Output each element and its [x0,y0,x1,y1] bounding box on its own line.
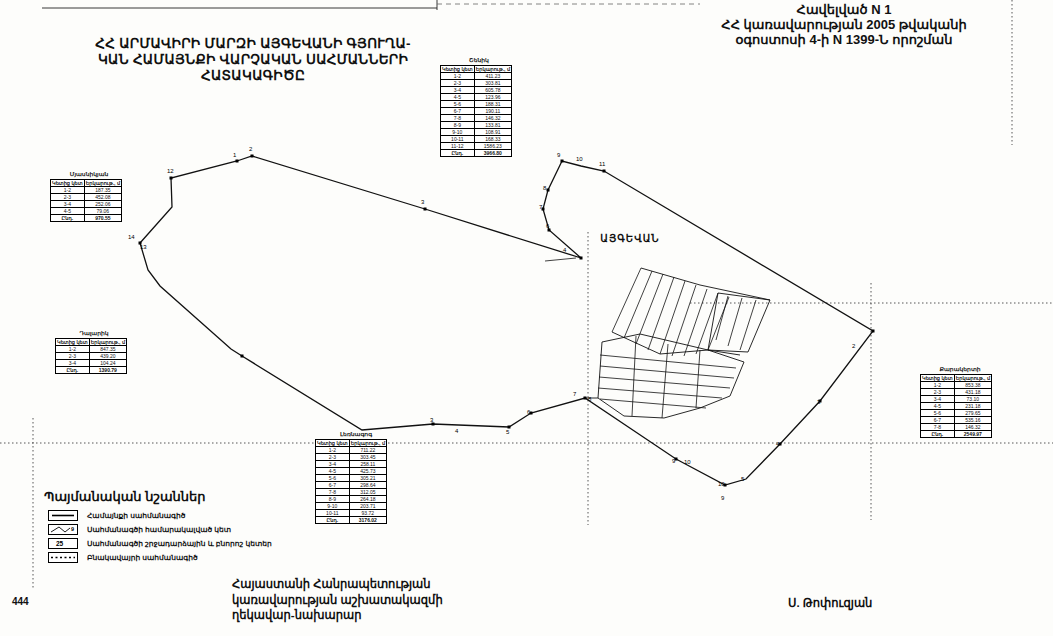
table-cell: 168.33 [474,136,511,143]
legend-label: Բնակավայրի սահմանագիծ [87,553,198,562]
table-title: Լեռնագոգ [315,430,397,437]
table-row: 4-5231.18 [921,403,992,410]
table-cell: 305.21 [349,475,386,482]
signatory-name: Ս. Թոփուզյան [788,596,872,610]
boundary-point-number: 9 [557,152,561,158]
parcel-top-edge [641,268,770,300]
table-row: 7-8146.32 [921,424,992,431]
table-header: Երկարութ., մ [349,440,386,447]
boundary-point-number: 6 [546,223,550,229]
segment-table-west-mid: Դալարիկ Կետից կետԵրկարութ., մ1-2847.352-… [55,329,133,374]
table-cell: 439.20 [89,353,126,360]
annex-line-2: ՀՀ կառավարության 2005 թվականի [640,17,1048,32]
parcel-strip [636,274,663,344]
segment-table-west-top: Մյասնիկյան Կետից կետԵրկարութ., մ1-2187.3… [50,170,128,222]
table-cell: 104.24 [89,360,126,367]
table-cell: 6-7 [316,482,350,489]
table-row: 3-473.10 [921,396,992,403]
table-cell: 5-6 [921,410,955,417]
table-cell: 303.45 [349,454,386,461]
boundary-point-number: 14 [128,234,135,240]
table-header: Երկարութ., մ [474,66,511,73]
table-cell: 279.65 [954,410,991,417]
table-cell: 3-4 [921,396,955,403]
segment-table-north: Շենիկ Կետից կետԵրկարութ., մ1-2411.232-33… [440,56,518,157]
community-boundary [140,156,873,485]
table-cell: 7-8 [921,424,955,431]
table-cell: 8-9 [441,122,475,129]
table-total-cell: 2549.97 [954,431,991,438]
table-cell: 6-7 [921,417,955,424]
boundary-point-number: 8 [543,185,547,191]
segment-length-table: Կետից կետԵրկարութ., մ1-2853.382-3431.183… [920,374,992,438]
table-cell: 4-5 [316,468,350,475]
table-row: 5-6188.31 [441,101,512,108]
title-line-1: ՀՀ ԱՐՄԱՎԻՐԻ ՄԱՐԶԻ ԱՅԳԵՎԱՆԻ ԳՅՈՒՂԱ- [76,36,430,52]
parcel-band [600,399,706,408]
legend-item-turning-point: 25 Սահմանագծի շրջադարձային և բնորոշ կետե… [48,538,272,549]
table-cell: 79.06 [84,208,121,215]
parcel-strip [740,300,756,350]
annex-line-1: Հավելված N 1 [640,2,1048,17]
table-row: 10-1193.72 [316,510,387,517]
boundary-point-number: 2 [852,343,856,349]
table-cell: 258.11 [349,461,386,468]
table-row: 9-10203.71 [316,503,387,510]
boundary-point-number: 2 [249,146,253,152]
table-cell: 2-3 [51,194,85,201]
parcel-block-east [708,293,770,352]
table-header: Կետից կետ [56,339,90,346]
turning-point-icon: 25 [48,538,78,549]
table-cell: 231.18 [954,403,991,410]
table-cell: 431.18 [954,389,991,396]
boundary-point-number: 10 [718,481,725,487]
parcel-strip [696,293,718,354]
table-row: 8-9264.18 [316,496,387,503]
table-title: Մյասնիկյան [50,170,128,177]
table-row: 1-2411.23 [441,73,512,80]
parcel-strip [684,289,707,356]
legend-title: Պայմանական նշաններ [44,489,206,504]
table-row: 2-3431.18 [921,389,992,396]
boundary-point-marker [547,189,550,192]
table-cell: 2-3 [56,353,90,360]
table-cell: 3-4 [316,461,350,468]
table-row: 4-5425.73 [316,468,387,475]
table-row: 2-3452.08 [51,194,122,201]
page-title: ՀՀ ԱՐՄԱՎԻՐԻ ՄԱՐԶԻ ԱՅԳԵՎԱՆԻ ԳՅՈՒՂԱ- ԿԱՆ Հ… [76,36,430,84]
table-row: 1-2853.38 [921,382,992,389]
numbered-point-icon: 9 [48,524,78,535]
title-line-3: ՀԱՏԱԿԱԳԻԾԸ [76,68,430,84]
parcel-band [600,355,736,368]
segment-length-table: Կետից կետԵրկարութ., մ1-2187.352-3452.083… [50,179,122,222]
table-title: Շենիկ [440,56,518,63]
table-row: 3-4252.06 [51,201,122,208]
table-cell: 2-3 [441,80,475,87]
legend-label: Սահմանագծի շրջադարձային և բնորոշ կետեր [87,539,272,548]
table-cell: 73.10 [954,396,991,403]
table-row: 6-7190.11 [441,108,512,115]
boundary-point-number: 13 [140,244,147,250]
scanned-map-page: { "page": { "number": "444" }, "annex": … [0,0,1053,636]
table-cell: 303.81 [474,80,511,87]
legend-item-numbered-point: 9 Սահմանագծի համարակալված կետ [48,524,272,535]
table-cell: 452.08 [84,194,121,201]
legend-label: Համայնքի սահմանագիծ [87,511,185,520]
table-total-cell: Ընդ. [441,150,475,157]
boundary-point-marker [872,330,875,333]
table-row: 2-3439.20 [56,353,127,360]
table-cell: 2-3 [316,454,350,461]
table-total-cell: 3966.80 [474,150,511,157]
table-row: 7-8146.32 [441,115,512,122]
table-cell: 3-4 [441,87,475,94]
table-header: Երկարութ., մ [954,375,991,382]
parcel-strip [612,268,641,332]
table-header: Կետից կետ [51,180,85,187]
table-total-cell: Ընդ. [921,431,955,438]
table-row: 6-7298.64 [316,482,387,489]
table-cell: 3-4 [56,360,90,367]
table-title: Քարակերտի [920,365,1000,372]
legend: Համայնքի սահմանագիծ 9 Սահմանագծի համարակ… [48,510,272,563]
table-row: 11-121586.23 [441,143,512,150]
table-cell: 1-2 [316,447,350,454]
signatory-line-1: Հայաստանի Հանրապետության [232,577,443,593]
table-total-cell: 3176.02 [349,517,386,524]
table-total-row: Ընդ.1390.79 [56,367,127,374]
table-cell: 853.38 [954,382,991,389]
table-cell: 1-2 [56,346,90,353]
table-cell: 10-11 [441,136,475,143]
table-cell: 11-12 [441,143,475,150]
table-cell: 190.11 [474,108,511,115]
table-cell: 10-11 [316,510,350,517]
boundary-arrow [545,258,576,261]
table-row: 6-7535.16 [921,417,992,424]
boundary-point-number: 11 [599,161,606,167]
table-header: Երկարութ., մ [89,339,126,346]
table-cell: 146.32 [954,424,991,431]
legend-item-settlement-border: Բնակավայրի սահմանագիծ [48,552,272,563]
boundary-point-marker [236,160,239,163]
boundary-point-number: 5 [506,429,510,435]
table-row: 2-3303.81 [441,80,512,87]
boundary-point-number: 10 [576,156,583,162]
boundary-point-marker [424,208,427,211]
table-row: 3-4605.78 [441,87,512,94]
table-row: 8-9133.81 [441,122,512,129]
table-cell: 203.71 [349,503,386,510]
signatory-line-2: կառավարության աշխատակազմի [232,593,443,609]
table-cell: 264.18 [349,496,386,503]
table-row: 1-2847.35 [56,346,127,353]
table-total-row: Ընդ.3966.80 [441,150,512,157]
legend-label: Սահմանագծի համարակալված կետ [87,525,231,534]
parcel-strip [624,271,652,338]
table-total-row: Ընդ.970.55 [51,215,122,222]
segment-table-south: Լեռնագոգ Կետից կետԵրկարութ., մ1-2711.222… [315,430,397,524]
table-cell: 1586.23 [474,143,511,150]
table-header: Կետից կետ [316,440,350,447]
segment-length-table: Կետից կետԵրկարութ., մ1-2711.222-3303.453… [315,439,387,524]
table-total-row: Ընդ.2549.97 [921,431,992,438]
boundary-point-marker [584,397,587,400]
svg-text:9: 9 [71,526,74,532]
table-row: 10-11168.33 [441,136,512,143]
boundary-point-number: 4 [455,428,459,434]
page-number: 444 [12,596,29,607]
table-row: 4-579.06 [51,208,122,215]
table-total-cell: Ընդ. [51,215,85,222]
boundary-point-marker [603,170,606,173]
boundary-point-number: 8 [588,396,592,402]
parcel-band [598,388,722,398]
table-row: 4-5123.96 [441,94,512,101]
boundary-point-marker [241,355,244,358]
boundary-point-marker [561,160,564,163]
table-cell: 93.72 [349,510,386,517]
table-header: Կետից կետ [441,66,475,73]
parcel-divider [662,344,668,418]
parcel-band [600,366,734,378]
table-row: 3-4104.24 [56,360,127,367]
table-cell: 4-5 [441,94,475,101]
parcel-strip [672,285,696,356]
table-header: Կետից կետ [921,375,955,382]
table-row: 2-3303.45 [316,454,387,461]
table-cell: 252.06 [84,201,121,208]
table-total-cell: Ընդ. [316,517,350,524]
table-cell: 9-10 [316,503,350,510]
solid-line-icon [48,510,78,521]
dotted-line-icon [48,552,78,563]
table-cell: 535.16 [954,417,991,424]
table-cell: 4-5 [51,208,85,215]
settlement-label: ԱՅԳԵՎԱՆ [575,233,685,244]
boundary-point-number: 4 [563,247,567,253]
boundary-point-number: 3 [421,199,425,205]
parcel-divider [696,350,700,408]
table-cell: 123.96 [474,94,511,101]
annex-line-3: օգոստոսի 4-ի N 1399-Ն որոշման [640,32,1048,47]
table-row: 1-2711.22 [316,447,387,454]
signatory-line-3: ղեկավար-նախարար [232,608,443,624]
svg-text:25: 25 [56,540,64,547]
table-cell: 146.32 [474,115,511,122]
signatory-title: Հայաստանի Հանրապետության կառավարության ա… [232,577,443,624]
table-cell: 312.05 [349,489,386,496]
boundary-point-number: 12 [167,168,174,174]
table-cell: 298.64 [349,482,386,489]
table-cell: 1-2 [51,187,85,194]
table-total-row: Ընդ.3176.02 [316,517,387,524]
table-cell: 5-6 [441,101,475,108]
table-cell: 7-8 [316,489,350,496]
table-cell: 187.35 [84,187,121,194]
table-cell: 5-6 [316,475,350,482]
table-cell: 6-7 [441,108,475,115]
table-cell: 847.35 [89,346,126,353]
table-total-cell: 1390.79 [89,367,126,374]
boundary-point-number: 3 [430,417,434,423]
table-cell: 108.91 [474,129,511,136]
table-cell: 4-5 [921,403,955,410]
table-cell: 1-2 [441,73,475,80]
boundary-point-number: 1 [233,152,237,158]
table-cell: 711.22 [349,447,386,454]
table-cell: 133.81 [474,122,511,129]
table-cell: 1-2 [921,382,955,389]
boundary-point-number: 9 [721,495,725,501]
title-line-2: ԿԱՆ ՀԱՄԱՅՆՔԻ ՎԱՐՉԱԿԱՆ ՍԱՀՄԱՆՆԵՐԻ [76,52,430,68]
table-total-cell: 970.55 [84,215,121,222]
table-row: 3-4258.11 [316,461,387,468]
table-row: 7-8312.05 [316,489,387,496]
boundary-point-number: 10 [684,459,691,465]
parcel-strip [660,281,685,354]
parcel-divider [632,336,636,416]
table-cell: 8-9 [316,496,350,503]
table-header: Երկարութ., մ [84,180,121,187]
boundary-point-marker [251,155,254,158]
table-row: 5-6279.65 [921,410,992,417]
table-cell: 411.23 [474,73,511,80]
boundary-point-marker [170,177,173,180]
segment-length-table: Կետից կետԵրկարութ., մ1-2411.232-3303.813… [440,65,512,157]
segment-table-east: Քարակերտի Կետից կետԵրկարութ., մ1-2853.38… [920,365,1000,438]
annex-heading: Հավելված N 1 ՀՀ կառավարության 2005 թվակա… [640,2,1048,47]
table-cell: 3-4 [51,201,85,208]
table-cell: 605.78 [474,87,511,94]
table-cell: 425.73 [349,468,386,475]
table-row: 9-10108.91 [441,129,512,136]
table-total-cell: Ընդ. [56,367,90,374]
table-cell: 188.31 [474,101,511,108]
table-cell: 7-8 [441,115,475,122]
table-cell: 9-10 [441,129,475,136]
boundary-point-number: 7 [573,391,577,397]
table-row: 1-2187.35 [51,187,122,194]
parcel-strip [728,298,742,346]
segment-length-table: Կետից կետԵրկարութ., մ1-2847.352-3439.203… [55,338,127,374]
table-title: Դալարիկ [55,329,133,336]
boundary-point-marker [580,257,583,260]
legend-item-community-border: Համայնքի սահմանագիծ [48,510,272,521]
table-row: 5-6305.21 [316,475,387,482]
table-cell: 2-3 [921,389,955,396]
